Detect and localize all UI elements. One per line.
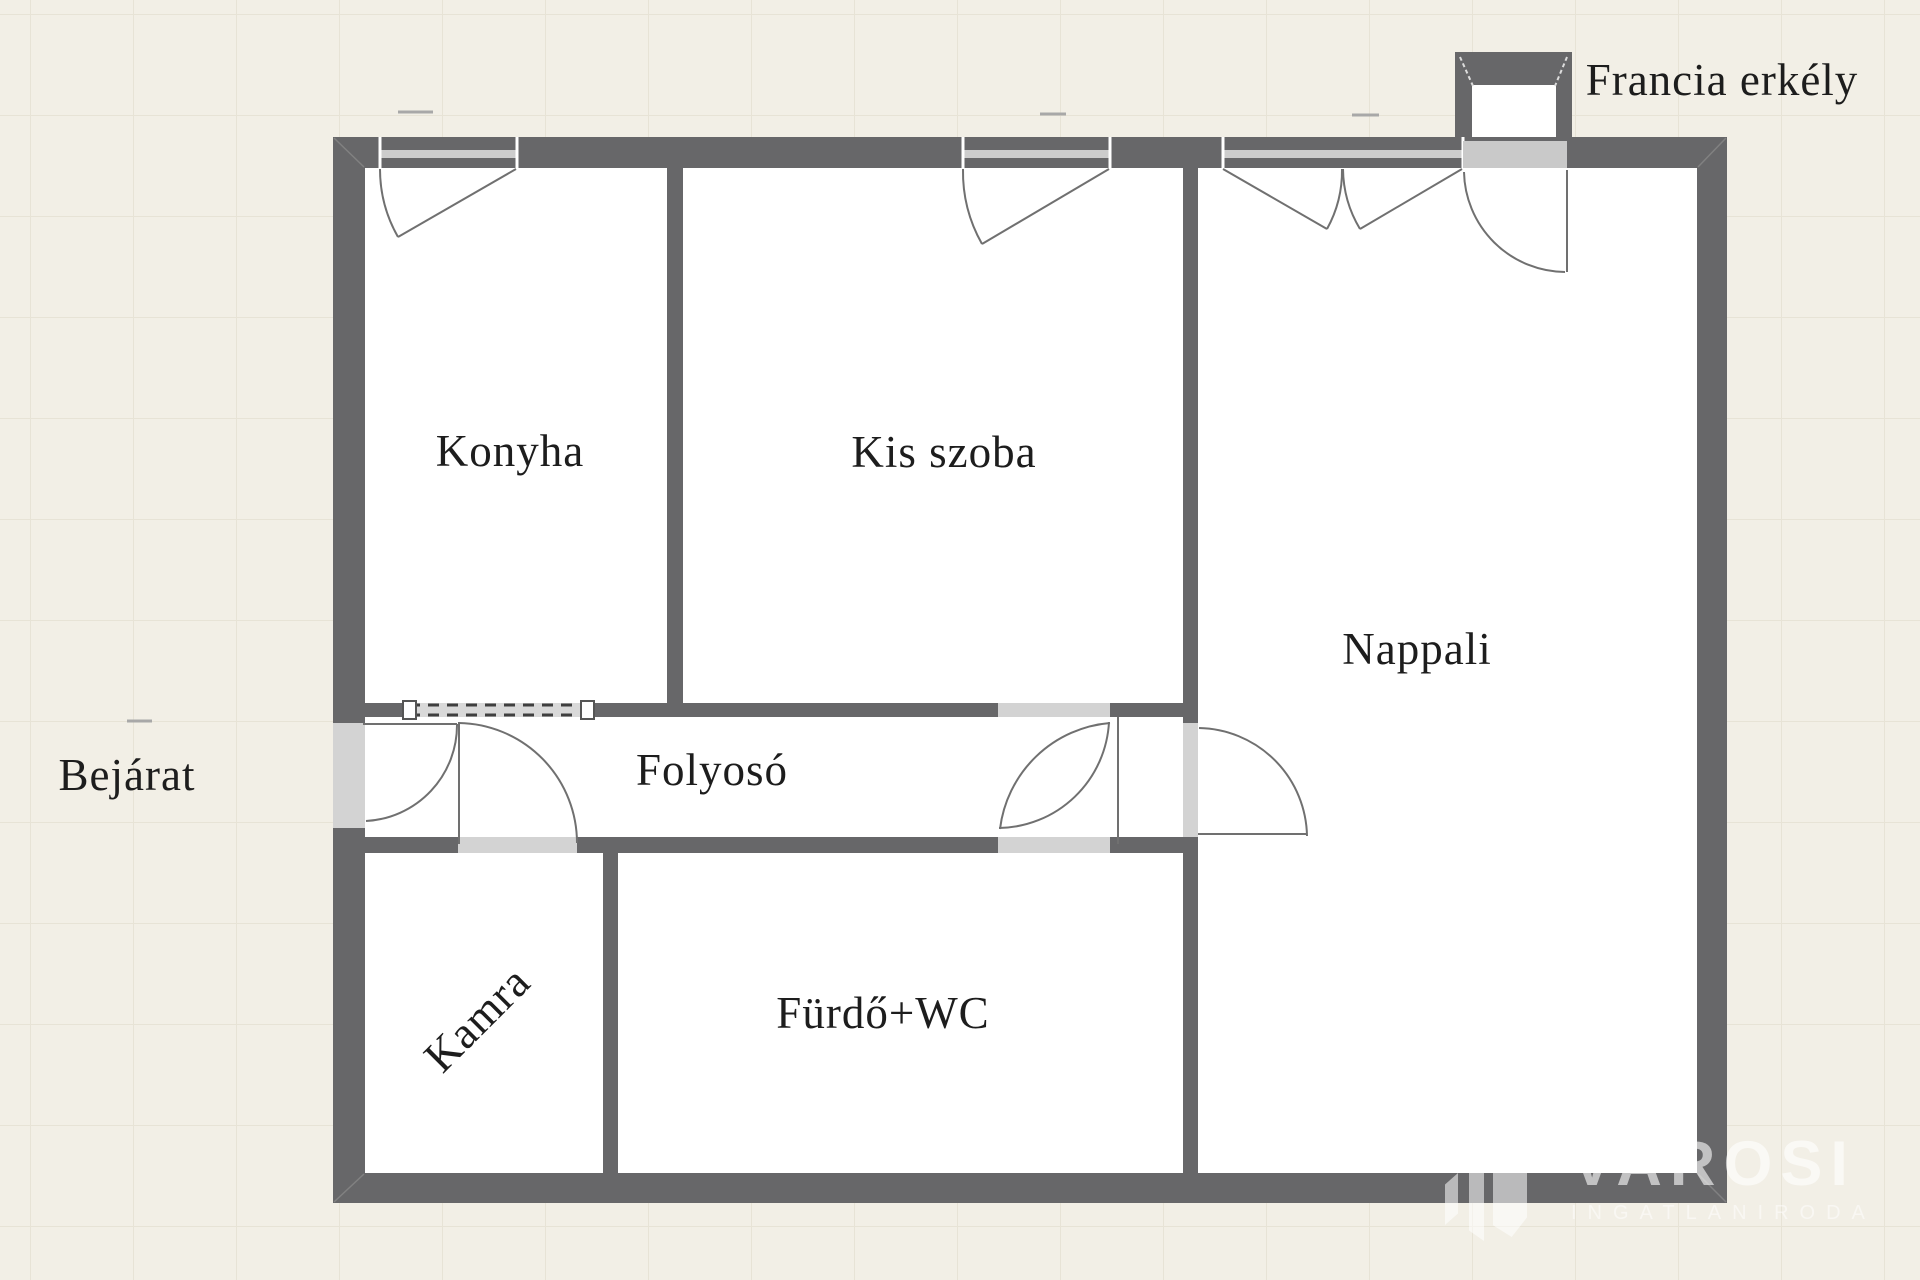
floor-plan-canvas: Konyha Kis szoba Nappali Folyosó Kamra F… [0, 0, 1920, 1280]
wall-konyha-kisszoba [667, 168, 683, 703]
opening-kis-szoba [998, 703, 1110, 717]
wall-left [333, 137, 365, 1203]
watermark-subtitle: INGATLANIRODA [1571, 1203, 1876, 1223]
watermark-logo-bar [1445, 1173, 1458, 1225]
french-balcony [1455, 52, 1572, 143]
room-label-nappali: Nappali [1342, 623, 1491, 675]
watermark-logo-bar [1493, 1139, 1527, 1237]
room-label-folyoso: Folyosó [636, 744, 788, 796]
window-nappali-glass [1222, 150, 1463, 158]
room-label-konyha: Konyha [436, 425, 584, 477]
watermark-logo-icon [1443, 1139, 1533, 1243]
opening-entrance [333, 723, 365, 828]
wall-kisszoba-nappali-upper [1183, 168, 1198, 723]
wall-kamra-furdo [603, 853, 618, 1173]
floor-plan-drawing [0, 0, 1920, 1280]
watermark: VAROSI INGATLANIRODA [1443, 1133, 1893, 1253]
window-konyha-glass [379, 150, 517, 158]
wall-right [1697, 137, 1727, 1203]
opening-kamra [458, 837, 577, 853]
sliding-door-cap-right [581, 701, 594, 719]
room-floors [365, 168, 1697, 1173]
balcony-interior [1472, 85, 1556, 143]
watermark-logo-bar [1469, 1153, 1484, 1241]
sliding-door-cap-left [403, 701, 416, 719]
opening-nappali [1183, 723, 1198, 837]
sliding-door-konyha [403, 701, 594, 719]
french-balcony-label: Francia erkély [1586, 54, 1859, 106]
wall-kisszoba-nappali-lower [1183, 837, 1198, 1173]
room-label-kis-szoba: Kis szoba [851, 426, 1036, 478]
opening-furdo [998, 837, 1110, 853]
window-kis-szoba-glass [962, 150, 1110, 158]
balcony-door-threshold [1463, 141, 1567, 168]
room-label-furdo-wc: Fürdő+WC [776, 987, 989, 1039]
watermark-brand: VAROSI [1571, 1133, 1856, 1196]
entrance-label: Bejárat [59, 749, 196, 801]
